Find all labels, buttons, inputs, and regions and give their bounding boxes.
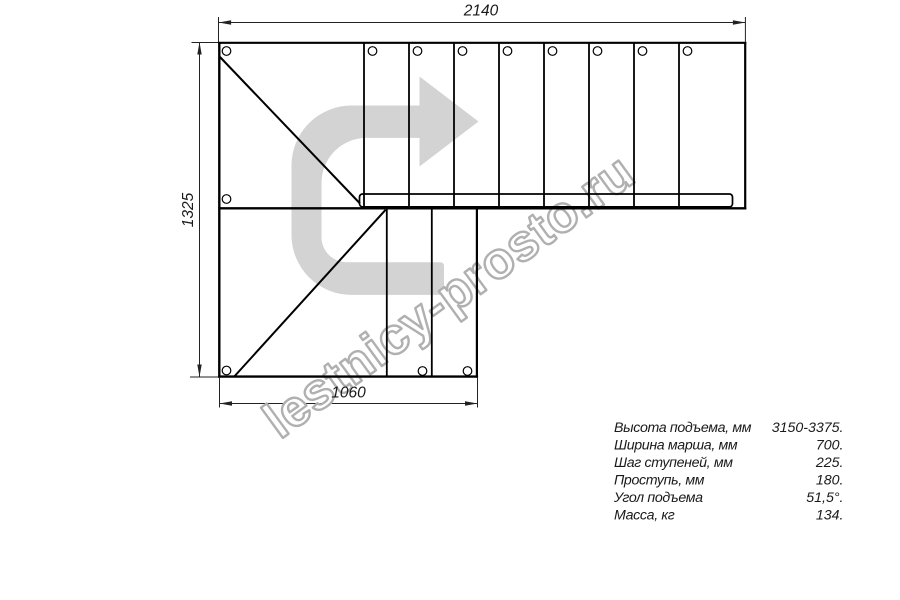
svg-text:2140: 2140 — [463, 3, 499, 20]
svg-text:225.: 225. — [815, 455, 844, 471]
svg-text:Ширина марша, мм: Ширина марша, мм — [614, 438, 738, 454]
svg-text:700.: 700. — [816, 438, 844, 454]
svg-text:3150-3375.: 3150-3375. — [772, 420, 844, 436]
svg-text:180.: 180. — [816, 473, 844, 489]
svg-text:Шаг ступеней, мм: Шаг ступеней, мм — [614, 455, 733, 471]
svg-text:Масса, кг: Масса, кг — [614, 508, 675, 524]
svg-text:51,5°.: 51,5°. — [806, 490, 843, 506]
svg-text:Проступь, мм: Проступь, мм — [614, 473, 705, 489]
svg-text:Высота подъема, мм: Высота подъема, мм — [614, 420, 752, 436]
svg-text:134.: 134. — [816, 508, 844, 524]
svg-text:Угол подъема: Угол подъема — [613, 490, 703, 506]
svg-text:1060: 1060 — [331, 385, 366, 402]
svg-text:1325: 1325 — [180, 192, 197, 227]
